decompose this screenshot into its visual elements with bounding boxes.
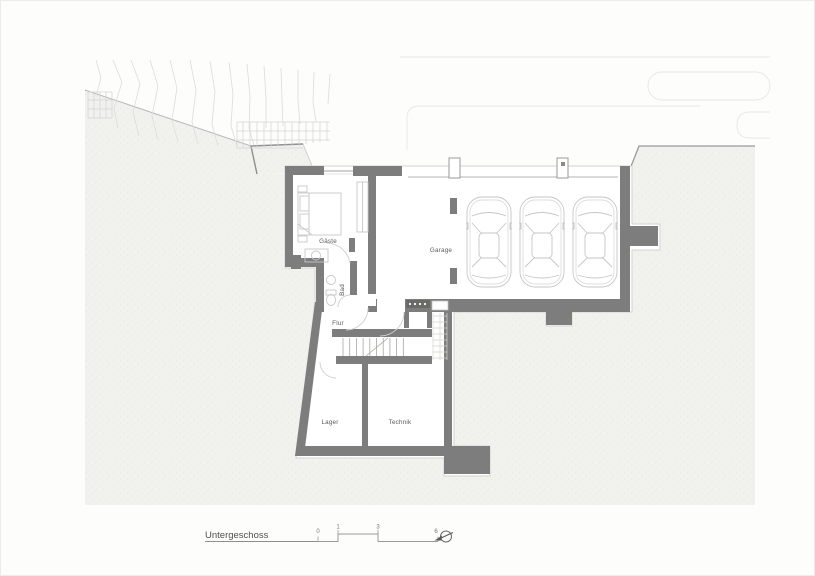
label-flur: Flur — [332, 320, 344, 327]
scale-tick-3: 3 — [376, 525, 380, 531]
wall-bad-right — [350, 261, 357, 295]
wall-garage-right — [620, 166, 630, 312]
wall-gaeste-garage — [368, 166, 376, 312]
wall-lager-technik — [362, 364, 368, 448]
wall-gaeste-top-right — [353, 166, 402, 176]
wall-gaeste-left — [285, 166, 293, 267]
title-block: Untergeschoss 0 1 3 6 — [205, 525, 453, 543]
wall-notch-south — [546, 312, 572, 325]
label-lager: Lager — [321, 419, 338, 426]
wall-stub-b — [427, 312, 432, 328]
wall-gaeste-bottom-block — [291, 255, 301, 269]
label-garage: Garage — [430, 247, 453, 254]
upper-floor-outline — [400, 57, 770, 150]
label-technik: Technik — [389, 419, 412, 426]
drawing-sheet: Gäste Garage Bad Flur Lager Technik Unte… — [0, 0, 815, 576]
garage-column-b — [450, 268, 457, 284]
wall-fin-east — [630, 226, 658, 246]
floor-plan-drawing: Gäste Garage Bad Flur Lager Technik Unte… — [0, 0, 815, 576]
wall-stair-lower — [336, 356, 432, 364]
scale-bar: 0 1 3 6 — [316, 525, 438, 542]
plan-title: Untergeschoss — [205, 530, 269, 541]
label-gaeste: Gäste — [319, 238, 337, 245]
scale-tick-6: 6 — [434, 529, 438, 535]
scale-tick-0: 0 — [316, 529, 320, 535]
gaeste-wall-stub — [349, 238, 355, 252]
scale-tick-1: 1 — [336, 525, 340, 531]
garage-column-a — [450, 198, 457, 214]
wall-lower-right — [444, 312, 452, 446]
label-bad: Bad — [339, 284, 346, 296]
wall-stub-a — [404, 312, 409, 328]
wall-bottom — [295, 446, 452, 456]
